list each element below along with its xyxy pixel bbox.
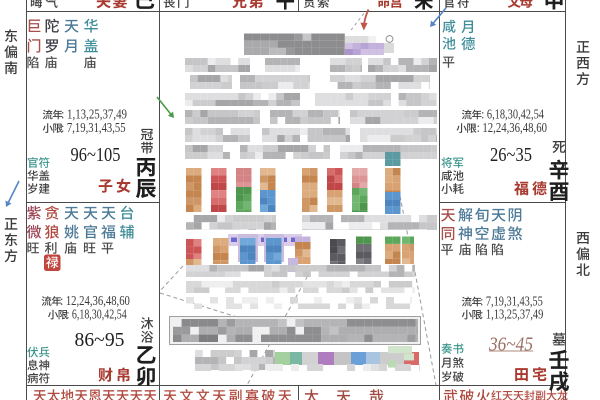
svg-text:36~45: 36~45 [488, 335, 533, 356]
svg-text:: 1,13,25,37,49: : 1,13,25,37,49 [480, 307, 543, 322]
svg-text:26~35: 26~35 [490, 145, 532, 166]
svg-text:: 7,19,31,43,55: : 7,19,31,43,55 [61, 120, 125, 135]
svg-text:96~105: 96~105 [71, 145, 121, 166]
svg-text:: 6,18,30,42,54: : 6,18,30,42,54 [67, 307, 127, 322]
svg-text:86~95: 86~95 [75, 330, 125, 351]
svg-text:: 12,24,36,48,60: : 12,24,36,48,60 [477, 120, 547, 135]
